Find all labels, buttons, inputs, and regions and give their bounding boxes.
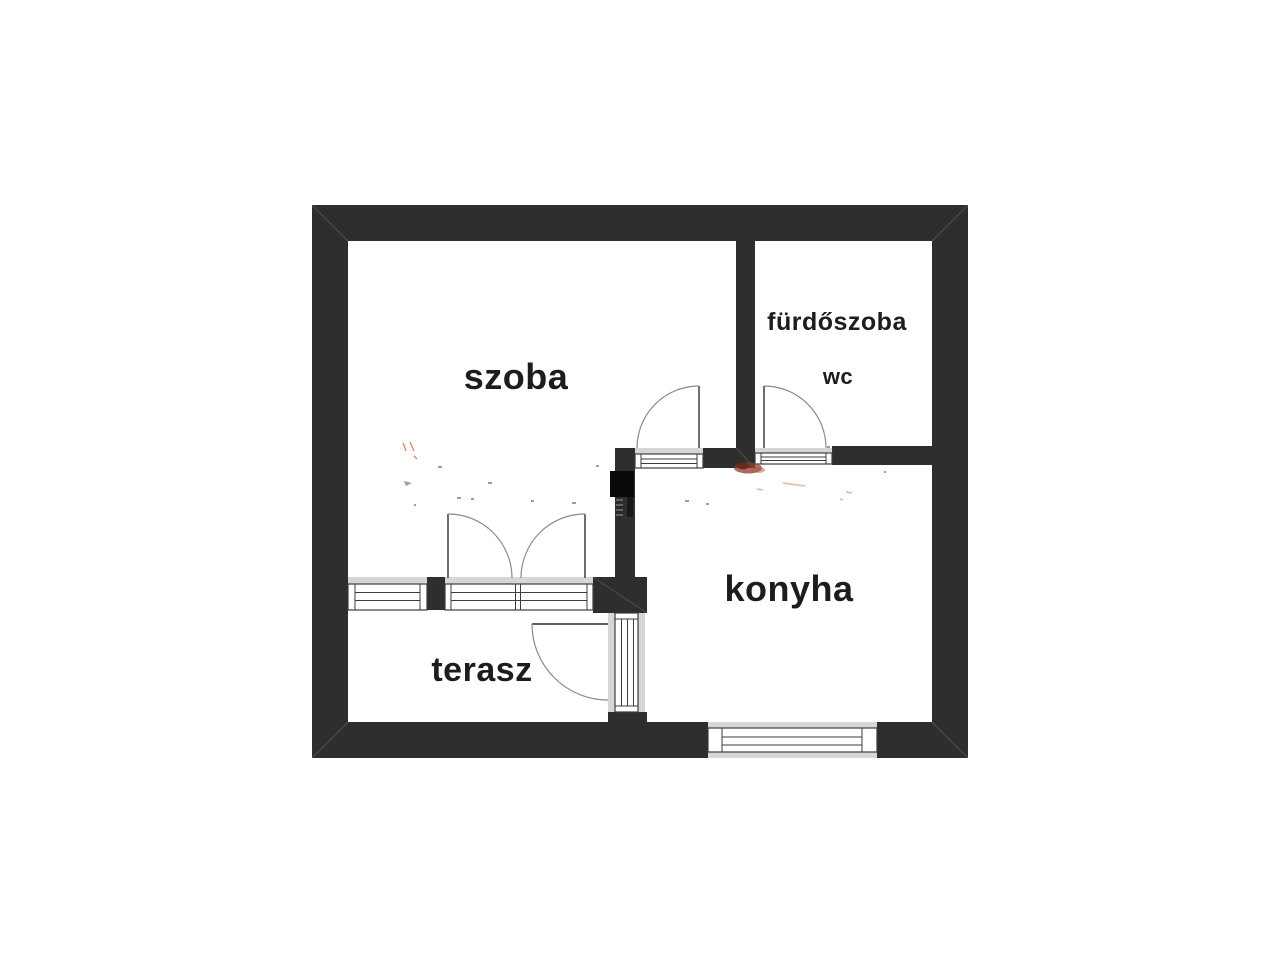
window-konyha-bottom — [708, 722, 877, 758]
outer-wall-right — [932, 205, 968, 758]
room-label-konyha: konyha — [724, 568, 854, 609]
room-label-wc: wc — [822, 364, 853, 389]
background — [0, 0, 1280, 960]
room-label-terasz: terasz — [431, 651, 532, 689]
room-label-furdoszoba: fürdőszoba — [767, 308, 907, 336]
window-szoba-left — [348, 577, 427, 610]
floor-plan-svg: szoba fürdőszoba wc konyha terasz — [0, 0, 1280, 960]
outer-wall-left — [312, 205, 348, 758]
wall-doorstrip-stub — [608, 712, 647, 723]
outer-wall-top — [312, 205, 968, 241]
room-label-szoba: szoba — [464, 356, 569, 397]
wall-window-pier — [427, 577, 445, 610]
wall-szoba-bathroom — [736, 241, 755, 448]
floor-plan-canvas: szoba fürdőszoba wc konyha terasz — [0, 0, 1280, 960]
wall-bathroom-konyha — [832, 446, 932, 465]
